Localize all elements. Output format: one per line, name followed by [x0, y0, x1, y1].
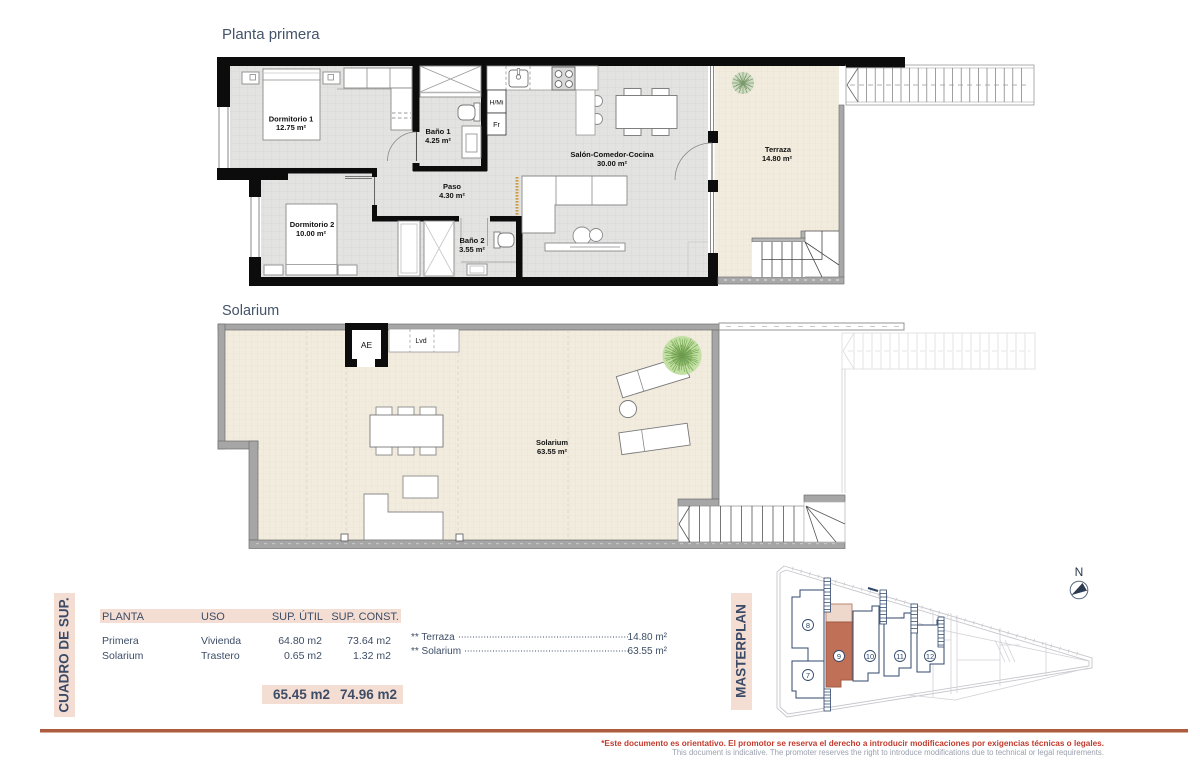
- svg-text:14.80 m²: 14.80 m²: [762, 154, 793, 163]
- svg-text:SUP. CONST.: SUP. CONST.: [331, 611, 399, 623]
- svg-text:3.55 m²: 3.55 m²: [459, 245, 485, 254]
- svg-text:0.65 m2: 0.65 m2: [284, 650, 322, 662]
- svg-text:Solarium: Solarium: [536, 438, 568, 447]
- svg-text:7: 7: [806, 671, 810, 680]
- svg-text:Planta primera: Planta primera: [222, 26, 320, 43]
- svg-text:PLANTA: PLANTA: [102, 611, 145, 623]
- svg-text:MASTERPLAN: MASTERPLAN: [734, 604, 749, 698]
- svg-text:** Solarium: ** Solarium: [411, 646, 461, 657]
- svg-text:Paso: Paso: [443, 182, 461, 191]
- svg-text:Solarium: Solarium: [102, 650, 144, 662]
- svg-text:AE: AE: [361, 340, 373, 350]
- svg-text:11: 11: [896, 652, 904, 661]
- svg-text:4.25 m²: 4.25 m²: [425, 136, 451, 145]
- svg-text:8: 8: [806, 621, 810, 630]
- svg-text:N: N: [1075, 565, 1084, 579]
- svg-text:Lvd: Lvd: [415, 338, 426, 345]
- svg-text:4.30 m²: 4.30 m²: [439, 191, 465, 200]
- svg-text:Vivienda: Vivienda: [201, 635, 241, 647]
- svg-text:Fr: Fr: [493, 120, 500, 129]
- svg-text:12.75 m²: 12.75 m²: [276, 123, 307, 132]
- svg-text:Baño 1: Baño 1: [425, 127, 450, 136]
- svg-text:CUADRO DE SUP.: CUADRO DE SUP.: [57, 597, 72, 712]
- svg-text:12: 12: [926, 652, 934, 661]
- svg-text:*Este documento es orientativo: *Este documento es orientativo. El promo…: [601, 739, 1104, 748]
- svg-text:64.80 m2: 64.80 m2: [278, 635, 322, 647]
- svg-text:65.45 m2: 65.45 m2: [273, 687, 330, 702]
- svg-text:30.00 m²: 30.00 m²: [597, 159, 628, 168]
- svg-text:74.96 m2: 74.96 m2: [340, 687, 397, 702]
- svg-text:73.64 m2: 73.64 m2: [347, 635, 391, 647]
- svg-text:10.00 m²: 10.00 m²: [296, 229, 327, 238]
- svg-text:This document is indicative.: This document is indicative. The promote…: [672, 748, 1104, 757]
- svg-text:1.32 m2: 1.32 m2: [353, 650, 391, 662]
- svg-text:63.55 m²: 63.55 m²: [537, 447, 568, 456]
- svg-text:H/Mi: H/Mi: [490, 100, 504, 107]
- svg-text:Trastero: Trastero: [201, 650, 240, 662]
- svg-text:14.80 m²: 14.80 m²: [628, 632, 668, 643]
- svg-text:SUP. ÚTIL: SUP. ÚTIL: [272, 610, 323, 623]
- svg-text:Solarium: Solarium: [222, 303, 279, 319]
- svg-text:** Terraza: ** Terraza: [411, 632, 455, 643]
- svg-text:USO: USO: [201, 611, 225, 623]
- svg-text:9: 9: [837, 652, 841, 661]
- svg-text:Salón-Comedor-Cocina: Salón-Comedor-Cocina: [570, 150, 654, 159]
- svg-text:Primera: Primera: [102, 635, 139, 647]
- svg-text:10: 10: [866, 652, 874, 661]
- svg-text:Baño 2: Baño 2: [459, 236, 484, 245]
- svg-text:Dormitorio 2: Dormitorio 2: [290, 220, 335, 229]
- svg-text:63.55 m²: 63.55 m²: [628, 646, 668, 657]
- svg-text:Terraza: Terraza: [765, 145, 792, 154]
